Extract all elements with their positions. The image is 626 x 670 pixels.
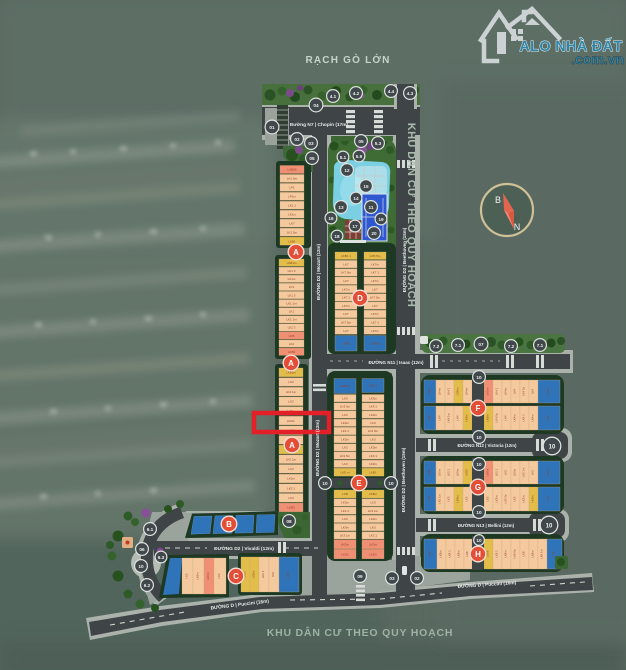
- svg-text:LK3: LK3: [370, 501, 376, 505]
- svg-text:ĐƯỜNG D2 | Mozart (12m): ĐƯỜNG D2 | Mozart (12m): [313, 419, 320, 476]
- svg-text:ĐƯỜNG D2 | Mozart (12m): ĐƯỜNG D2 | Mozart (12m): [314, 243, 321, 300]
- svg-text:KHU DÂN CƯ THEO QUY HOẠCH: KHU DÂN CƯ THEO QUY HOẠCH: [267, 626, 454, 639]
- svg-text:5.1: 5.1: [340, 155, 347, 160]
- svg-text:4.1: 4.1: [330, 94, 337, 99]
- svg-text:LK5m: LK5m: [438, 468, 442, 476]
- svg-text:Đường N7 | Chopin (17m): Đường N7 | Chopin (17m): [290, 122, 349, 128]
- svg-text:5.9: 5.9: [356, 154, 363, 159]
- svg-text:4.3: 4.3: [407, 91, 414, 96]
- svg-text:A: A: [289, 441, 295, 450]
- svg-text:LKB: LKB: [428, 551, 432, 556]
- svg-text:LK5 1: LK5 1: [447, 468, 451, 476]
- svg-text:LKB: LKB: [546, 496, 550, 501]
- svg-text:LK4 5a: LK4 5a: [522, 387, 526, 396]
- svg-text:LK3: LK3: [342, 462, 348, 466]
- svg-text:D: D: [357, 294, 363, 303]
- svg-text:LK3m: LK3m: [369, 462, 377, 466]
- svg-text:LK1 5m: LK1 5m: [287, 177, 298, 181]
- svg-text:LK1 5m: LK1 5m: [287, 230, 298, 234]
- svg-text:LK5: LK5: [465, 496, 469, 501]
- svg-text:LK8: LK8: [465, 551, 469, 556]
- svg-text:LK5 1: LK5 1: [495, 468, 499, 476]
- svg-text:02: 02: [414, 576, 420, 581]
- svg-text:ĐƯỜNG N12 | Victoria (12m): ĐƯỜNG N12 | Victoria (12m): [457, 443, 517, 448]
- svg-text:04: 04: [313, 103, 319, 108]
- svg-text:LKDm: LKDm: [369, 543, 378, 547]
- svg-text:09: 09: [357, 574, 363, 579]
- svg-text:E: E: [356, 479, 362, 488]
- svg-text:13: 13: [338, 205, 344, 210]
- svg-text:LK7m: LK7m: [371, 312, 379, 316]
- svg-text:LK2: LK2: [288, 467, 294, 471]
- svg-text:LK2: LK2: [288, 380, 294, 384]
- svg-text:LK4: LK4: [531, 389, 535, 394]
- svg-text:LK4m: LK4m: [504, 387, 508, 395]
- svg-text:10: 10: [322, 481, 328, 486]
- svg-text:LKB: LKB: [289, 334, 295, 338]
- svg-text:LK3 1m: LK3 1m: [340, 534, 351, 538]
- svg-text:LK4m: LK4m: [513, 414, 517, 422]
- svg-text:LKBm: LKBm: [456, 387, 460, 395]
- svg-text:LK6: LK6: [271, 572, 275, 577]
- svg-text:LKB 5m: LKB 5m: [370, 254, 381, 258]
- svg-text:LK3 1: LK3 1: [369, 534, 377, 538]
- svg-text:LK3: LK3: [370, 437, 376, 441]
- svg-text:G: G: [475, 483, 481, 492]
- svg-text:LKB: LKB: [427, 389, 431, 394]
- svg-text:LK1 1m: LK1 1m: [286, 318, 297, 322]
- svg-text:LKDm: LKDm: [341, 543, 350, 547]
- svg-text:LKDm: LKDm: [287, 419, 296, 423]
- svg-text:LK3: LK3: [342, 396, 348, 400]
- svg-text:LKB: LKB: [342, 492, 348, 496]
- svg-text:LK5m: LK5m: [513, 468, 517, 476]
- svg-text:LK8 5a: LK8 5a: [513, 549, 517, 558]
- svg-text:LKB06: LKB06: [287, 168, 296, 172]
- svg-text:LKBm: LKBm: [456, 495, 460, 503]
- svg-text:LK3m: LK3m: [369, 517, 377, 521]
- svg-text:5.3: 5.3: [375, 141, 382, 146]
- svg-text:LKB: LKB: [427, 496, 431, 501]
- svg-text:H: H: [475, 550, 481, 559]
- svg-text:KHU DÂN CƯ THEO QUY HOẠCH: KHU DÂN CƯ THEO QUY HOẠCH: [405, 123, 418, 308]
- svg-text:LK5 1m: LK5 1m: [522, 467, 526, 477]
- svg-text:LKBm: LKBm: [531, 495, 535, 503]
- svg-text:06: 06: [139, 547, 145, 552]
- svg-text:16: 16: [328, 216, 334, 221]
- svg-text:LK7: LK7: [343, 262, 349, 266]
- svg-text:LK2 1m: LK2 1m: [286, 390, 297, 394]
- svg-text:ĐƯỜNG N11 | Isaac (12m): ĐƯỜNG N11 | Isaac (12m): [368, 358, 424, 365]
- svg-text:LK8 1: LK8 1: [448, 550, 452, 558]
- svg-text:10: 10: [388, 481, 394, 486]
- svg-text:LKBm: LKBm: [252, 570, 256, 578]
- svg-text:LK6: LK6: [185, 573, 189, 578]
- svg-text:6.1: 6.1: [147, 527, 154, 532]
- svg-text:LK7: LK7: [289, 221, 295, 225]
- svg-text:LK7m: LK7m: [342, 304, 350, 308]
- svg-text:ĐƯỜNG D2 | Beethoven (15m): ĐƯỜNG D2 | Beethoven (15m): [399, 447, 406, 512]
- svg-text:LK1: LK1: [289, 309, 295, 313]
- svg-text:F: F: [476, 404, 481, 413]
- svg-text:18: 18: [334, 234, 340, 239]
- svg-text:LK7m: LK7m: [342, 287, 350, 291]
- svg-text:LK7 5m: LK7 5m: [370, 296, 381, 300]
- svg-text:LK7m: LK7m: [371, 329, 379, 333]
- svg-text:N: N: [514, 222, 521, 232]
- svg-text:LKBm: LKBm: [486, 468, 490, 476]
- svg-text:10: 10: [476, 462, 482, 467]
- svg-text:LK3: LK3: [342, 446, 348, 450]
- svg-text:19: 19: [378, 217, 384, 222]
- svg-text:LKB5: LKB5: [342, 341, 350, 345]
- svg-text:LKB 5: LKB 5: [546, 468, 550, 476]
- svg-text:LKBm: LKBm: [369, 492, 378, 496]
- svg-text:01: 01: [269, 125, 275, 130]
- svg-text:LK3: LK3: [342, 517, 348, 521]
- svg-text:A: A: [293, 248, 299, 257]
- svg-text:6.2: 6.2: [144, 583, 151, 588]
- svg-text:LK5m: LK5m: [522, 495, 526, 503]
- svg-text:LK6m: LK6m: [196, 572, 200, 580]
- svg-text:LK5 1m: LK5 1m: [438, 494, 442, 504]
- svg-text:LKB3: LKB3: [287, 506, 295, 510]
- svg-text:LK7 1: LK7 1: [371, 320, 379, 324]
- svg-text:RẠCH GÒ LỚN: RẠCH GÒ LỚN: [305, 53, 390, 66]
- svg-text:B: B: [495, 195, 501, 205]
- svg-text:7.1: 7.1: [455, 343, 462, 348]
- svg-text:LK4: LK4: [438, 415, 442, 420]
- svg-text:LK7m: LK7m: [371, 279, 379, 283]
- svg-text:LK4 1: LK4 1: [522, 414, 526, 422]
- svg-text:LK3m: LK3m: [369, 396, 377, 400]
- svg-text:LK4 1: LK4 1: [495, 387, 499, 395]
- svg-text:LK6 1: LK6 1: [261, 570, 265, 578]
- svg-text:LKD m: LKD m: [340, 470, 350, 474]
- svg-text:LK3 1: LK3 1: [369, 405, 377, 409]
- svg-text:LKB: LKB: [552, 551, 556, 556]
- svg-text:LK7 1: LK7 1: [371, 271, 379, 275]
- svg-text:LK3 5m: LK3 5m: [340, 454, 351, 458]
- svg-text:07: 07: [478, 342, 484, 347]
- svg-text:08: 08: [286, 519, 292, 524]
- svg-text:05: 05: [358, 139, 364, 144]
- svg-text:LK4: LK4: [456, 415, 460, 420]
- svg-text:15: 15: [363, 184, 369, 189]
- svg-text:LK1 5: LK1 5: [288, 293, 296, 297]
- svg-text:7.2: 7.2: [508, 344, 515, 349]
- svg-text:.com.vn: .com.vn: [571, 51, 624, 67]
- svg-text:11: 11: [369, 205, 374, 210]
- svg-text:02: 02: [294, 137, 300, 142]
- svg-text:ĐƯỜNG N13 | Bellini (12m): ĐƯỜNG N13 | Bellini (12m): [458, 523, 515, 528]
- svg-text:LK4 5a: LK4 5a: [495, 413, 499, 422]
- svg-text:LKB 2: LKB 2: [369, 384, 378, 388]
- svg-text:LK3 1: LK3 1: [369, 454, 377, 458]
- svg-text:LK5 5a: LK5 5a: [504, 494, 508, 503]
- svg-text:LK1m: LK1m: [288, 277, 296, 281]
- svg-text:LK2 1: LK2 1: [287, 486, 295, 490]
- svg-text:LK4: LK4: [504, 415, 508, 420]
- svg-text:LKD1: LKD1: [369, 552, 377, 556]
- svg-text:LK8: LK8: [522, 551, 526, 556]
- svg-text:LKB 5: LKB 5: [286, 570, 290, 578]
- svg-text:LKD1: LKD1: [341, 552, 349, 556]
- svg-text:05: 05: [309, 156, 315, 161]
- svg-text:LK4m: LK4m: [465, 387, 469, 395]
- svg-text:4.2: 4.2: [353, 91, 360, 96]
- svg-text:LK1 1m: LK1 1m: [286, 301, 297, 305]
- svg-text:LP1m: LP1m: [288, 195, 296, 199]
- svg-text:LK2 1m: LK2 1m: [286, 457, 297, 461]
- svg-text:LKB: LKB: [427, 470, 431, 475]
- svg-text:LKDm: LKDm: [206, 571, 210, 579]
- svg-text:10: 10: [476, 510, 482, 515]
- svg-text:LK3: LK3: [342, 413, 348, 417]
- svg-text:10: 10: [476, 435, 482, 440]
- svg-text:LK3: LK3: [288, 496, 294, 500]
- svg-text:LK8m: LK8m: [457, 550, 461, 558]
- svg-text:LK1m: LK1m: [288, 212, 296, 216]
- svg-text:LK3 1: LK3 1: [341, 509, 349, 513]
- svg-text:LKB 5a: LKB 5a: [370, 341, 380, 345]
- svg-text:LK5m: LK5m: [456, 468, 460, 476]
- svg-text:LK7m: LK7m: [371, 262, 379, 266]
- svg-text:LK5: LK5: [486, 496, 490, 501]
- svg-text:LK3 1m: LK3 1m: [368, 509, 379, 513]
- svg-text:LK4m: LK4m: [531, 414, 535, 422]
- svg-text:LK7 5m: LK7 5m: [341, 271, 352, 275]
- svg-text:LKB2: LKB2: [465, 469, 469, 476]
- svg-text:4.4: 4.4: [388, 89, 395, 94]
- svg-text:12: 12: [344, 168, 350, 173]
- svg-text:LKB1: LKB1: [369, 470, 377, 474]
- svg-text:LK6: LK6: [217, 573, 221, 578]
- svg-text:LKBm: LKBm: [486, 414, 490, 422]
- svg-text:LP1: LP1: [289, 186, 295, 190]
- svg-text:LK3m: LK3m: [369, 413, 377, 417]
- svg-text:LK7: LK7: [343, 279, 349, 283]
- svg-text:LK7 5m: LK7 5m: [341, 320, 352, 324]
- svg-text:LK5: LK5: [531, 470, 535, 475]
- svg-text:B: B: [226, 520, 232, 529]
- svg-text:LKB3: LKB3: [288, 350, 296, 354]
- svg-text:LK2 3: LK2 3: [288, 326, 296, 330]
- svg-text:10: 10: [546, 523, 553, 529]
- svg-text:20: 20: [371, 231, 377, 236]
- svg-text:LK7: LK7: [343, 329, 349, 333]
- svg-text:LKDm: LKDm: [486, 387, 490, 395]
- svg-text:LK3m: LK3m: [341, 421, 349, 425]
- svg-text:A: A: [288, 359, 294, 368]
- svg-text:LK3: LK3: [370, 421, 376, 425]
- svg-text:LKB1m: LKB1m: [287, 261, 297, 265]
- svg-text:LK4m: LK4m: [438, 387, 442, 395]
- svg-text:C: C: [233, 572, 239, 581]
- svg-text:LK1 1: LK1 1: [288, 204, 296, 208]
- svg-text:LK5: LK5: [504, 470, 508, 475]
- svg-text:LK8m: LK8m: [439, 550, 443, 558]
- svg-text:LK2: LK2: [289, 342, 295, 346]
- svg-text:6.3: 6.3: [158, 555, 165, 560]
- svg-text:LKB1 1: LKB1 1: [341, 254, 351, 258]
- svg-text:LK3m: LK3m: [341, 437, 349, 441]
- svg-text:LK5m: LK5m: [495, 495, 499, 503]
- svg-text:LKBm: LKBm: [465, 414, 469, 422]
- svg-text:10: 10: [549, 444, 556, 450]
- svg-text:LK7: LK7: [343, 312, 349, 316]
- svg-text:03: 03: [389, 576, 395, 581]
- svg-text:17: 17: [352, 224, 358, 229]
- svg-text:10: 10: [138, 564, 144, 569]
- svg-text:LK7 1: LK7 1: [342, 296, 350, 300]
- svg-text:LK3m: LK3m: [369, 446, 377, 450]
- svg-text:7.2: 7.2: [433, 344, 440, 349]
- svg-text:LK2: LK2: [288, 400, 294, 404]
- svg-text:03: 03: [308, 141, 314, 146]
- svg-text:LK7: LK7: [372, 287, 378, 291]
- svg-text:LKB 5a: LKB 5a: [340, 384, 350, 388]
- svg-text:LK8m: LK8m: [531, 550, 535, 558]
- svg-text:LK1 3: LK1 3: [288, 269, 296, 273]
- svg-text:LKB: LKB: [427, 415, 431, 420]
- svg-text:LK8 1m: LK8 1m: [540, 549, 544, 559]
- svg-text:LK3m: LK3m: [341, 525, 349, 529]
- svg-text:LK3 5m: LK3 5m: [340, 405, 351, 409]
- svg-text:LK8m: LK8m: [504, 550, 508, 558]
- svg-text:LK4 1: LK4 1: [447, 387, 451, 395]
- svg-text:LK8 1: LK8 1: [495, 550, 499, 558]
- svg-text:10: 10: [476, 538, 482, 543]
- svg-text:LK5: LK5: [513, 496, 517, 501]
- svg-text:LK3m: LK3m: [341, 501, 349, 505]
- svg-text:7.1: 7.1: [537, 343, 544, 348]
- svg-text:LK4: LK4: [513, 389, 517, 394]
- svg-text:LK3 1: LK3 1: [341, 429, 349, 433]
- svg-text:LKB 5: LKB 5: [546, 387, 550, 395]
- svg-text:LK7: LK7: [372, 304, 378, 308]
- svg-text:LK4 1m: LK4 1m: [447, 413, 451, 423]
- svg-text:LP1: LP1: [289, 285, 295, 289]
- svg-text:LK3 5m: LK3 5m: [368, 429, 379, 433]
- svg-text:LKB: LKB: [546, 415, 550, 420]
- svg-text:LK2m: LK2m: [287, 477, 295, 481]
- svg-text:LK3: LK3: [370, 525, 376, 529]
- svg-text:10: 10: [476, 375, 482, 380]
- svg-text:LKB1: LKB1: [288, 239, 296, 243]
- svg-text:14: 14: [353, 196, 359, 201]
- svg-text:LK5: LK5: [447, 496, 451, 501]
